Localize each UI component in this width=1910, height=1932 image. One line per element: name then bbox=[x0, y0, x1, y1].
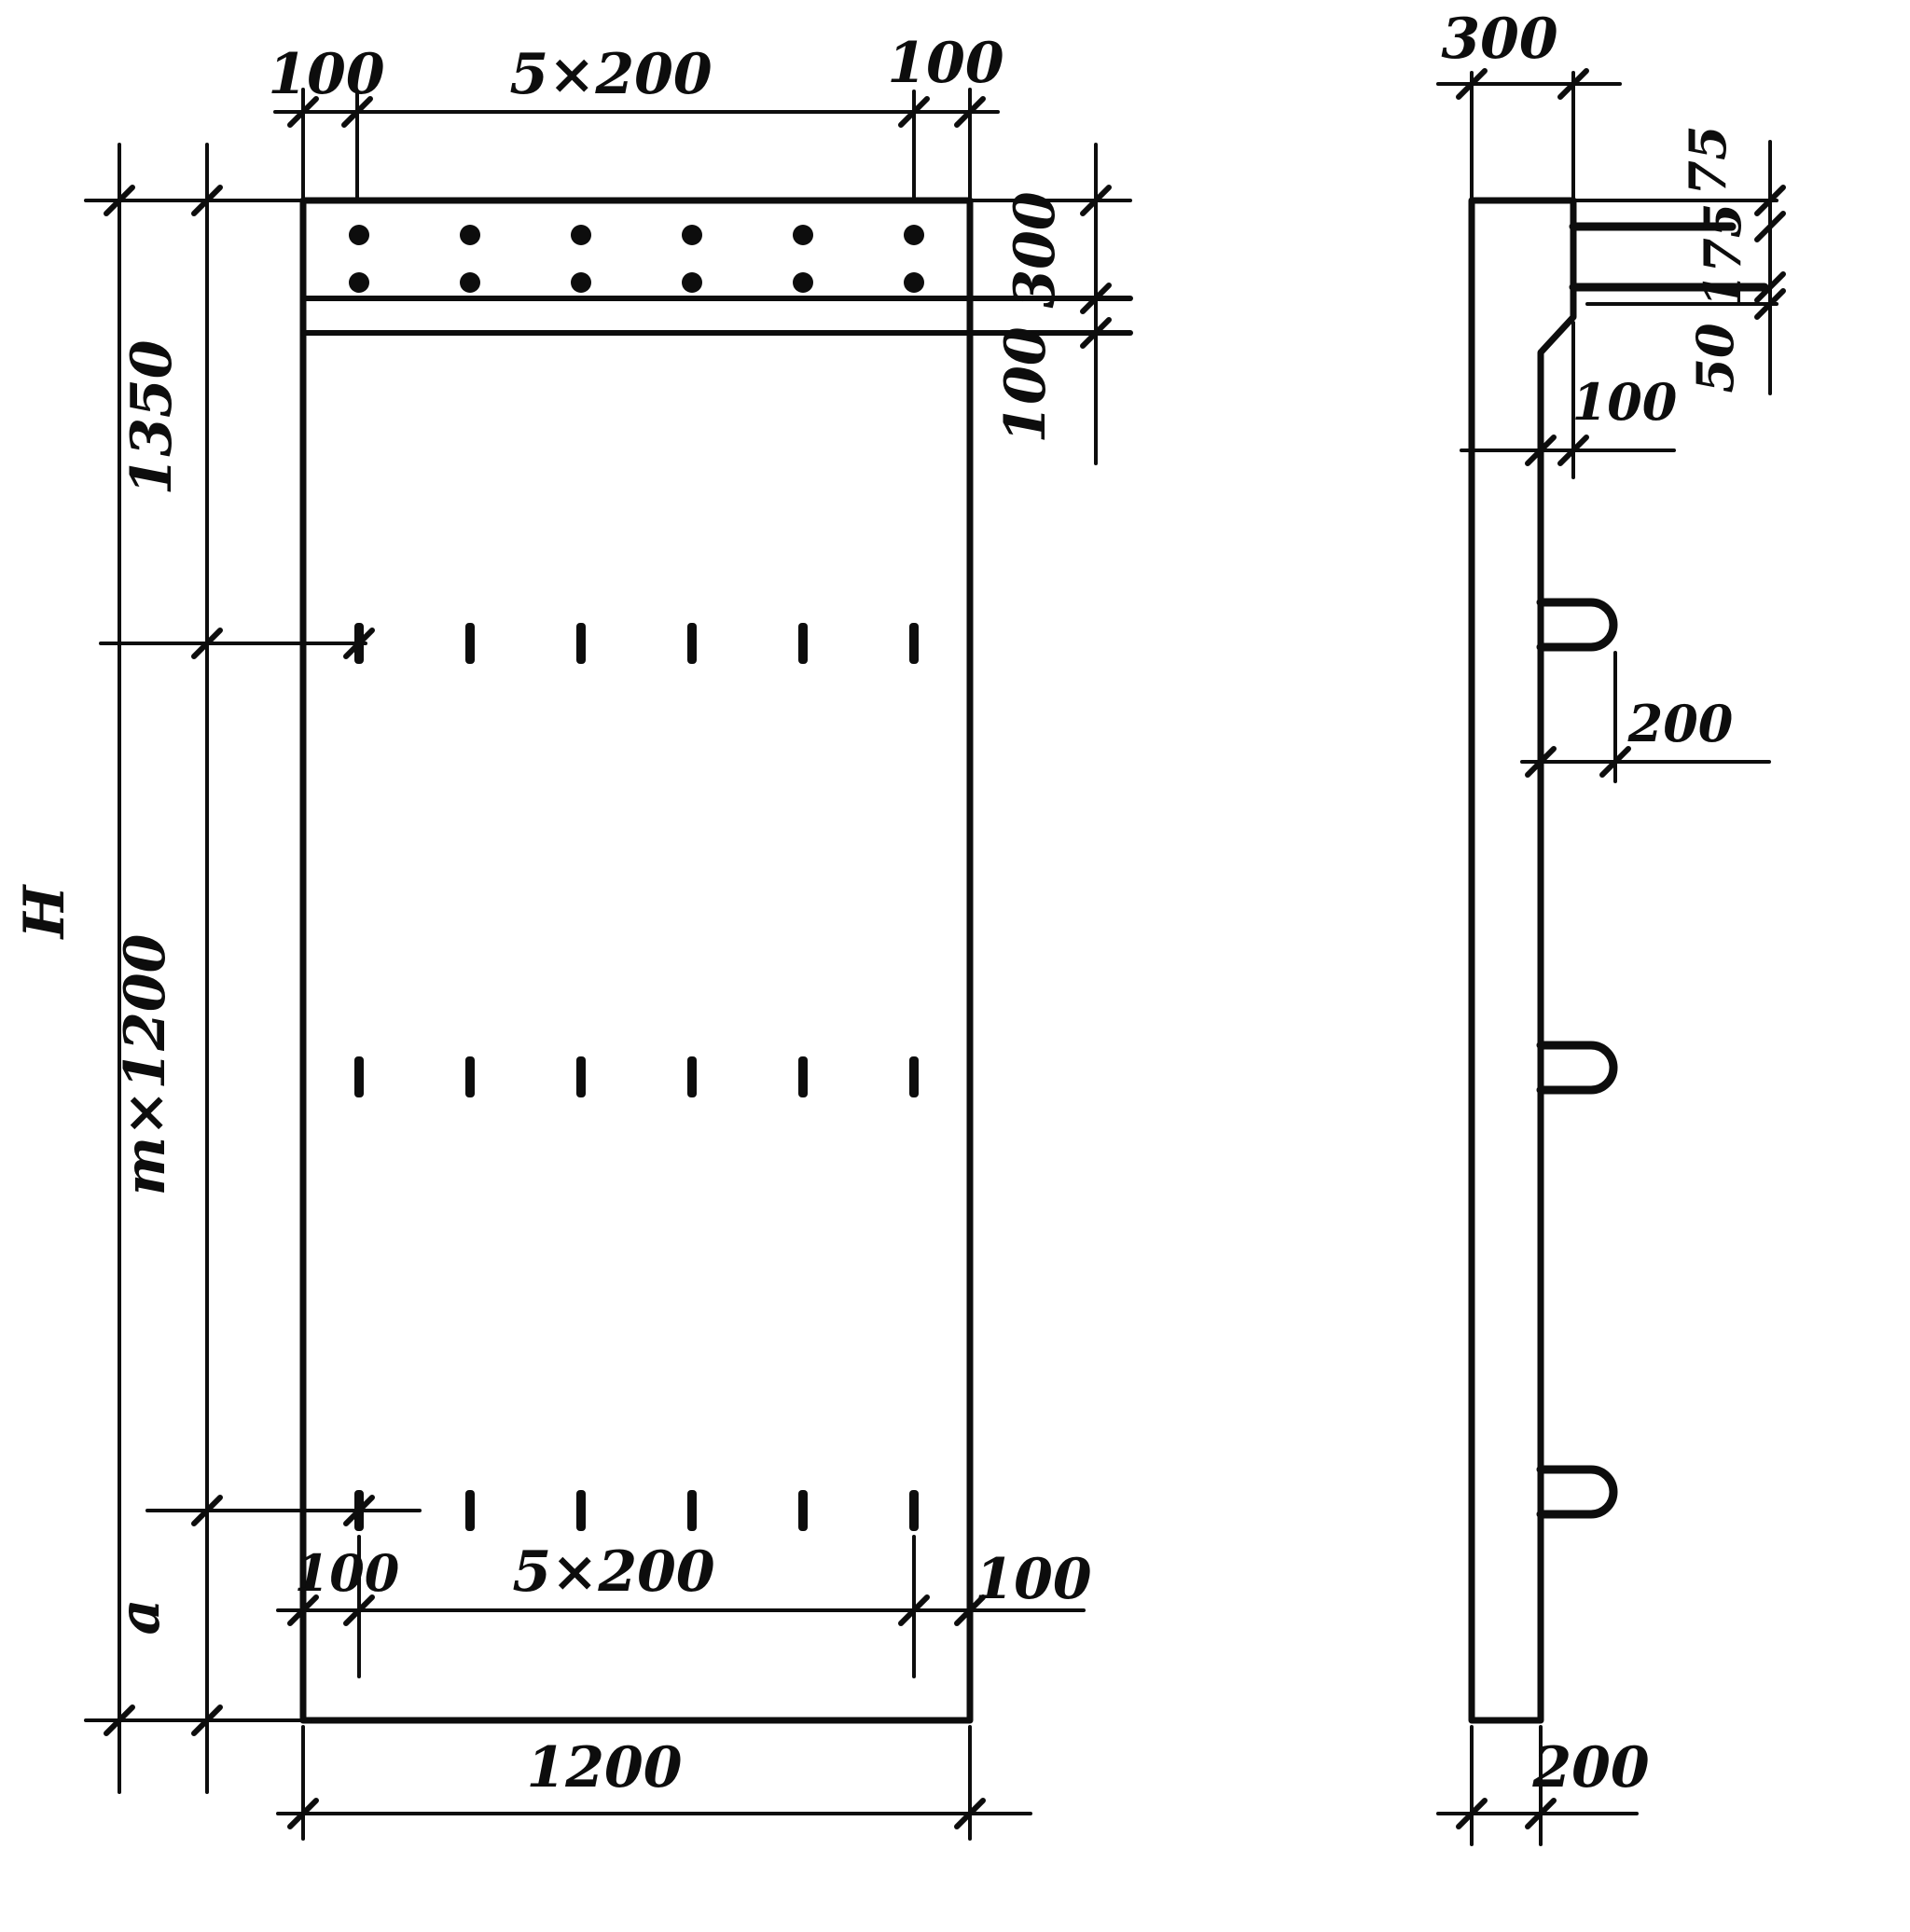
anchor-dot bbox=[904, 272, 924, 293]
dim-top-left-margin: 100 bbox=[268, 42, 384, 107]
anchor-dot bbox=[349, 225, 369, 245]
slot-marks bbox=[354, 623, 919, 1531]
dim-top-right-margin: 100 bbox=[887, 31, 1003, 96]
side-dimensions: 300 75 175 50 100 200 200 bbox=[1438, 7, 1777, 1844]
drawing-sheet: 100 5×200 100 300 100 1350 m×1200 a H 10… bbox=[0, 0, 1910, 1932]
lifting-loop bbox=[1541, 602, 1613, 647]
slot-mark bbox=[576, 623, 586, 664]
dim-bar-offset-bottom: 50 bbox=[1685, 323, 1745, 393]
dim-bottom-offset: a bbox=[107, 1599, 173, 1635]
anchor-dot bbox=[682, 272, 702, 293]
dim-bar-spacing: 175 bbox=[1693, 203, 1752, 309]
slot-mark bbox=[354, 1056, 364, 1097]
dim-step-width: 100 bbox=[1572, 372, 1678, 432]
slot-mark bbox=[909, 623, 919, 664]
slot-mark bbox=[465, 1490, 475, 1531]
dim-side-thickness: 300 bbox=[1441, 7, 1557, 72]
dim-top-spacing: 5×200 bbox=[509, 42, 713, 107]
lifting-loop bbox=[1541, 1470, 1613, 1514]
dim-total-height: H bbox=[12, 883, 77, 940]
dim-band-height: 300 bbox=[1003, 191, 1068, 308]
slot-mark bbox=[798, 1490, 808, 1531]
dim-panel-width: 1200 bbox=[527, 1735, 683, 1801]
slot-mark bbox=[798, 623, 808, 664]
front-panel-outline bbox=[303, 200, 970, 1720]
anchor-dot bbox=[904, 225, 924, 245]
front-dimensions: 100 5×200 100 300 100 1350 m×1200 a H 10… bbox=[12, 31, 1130, 1839]
lifting-loop bbox=[1541, 1045, 1613, 1090]
anchor-dot bbox=[571, 272, 591, 293]
slot-mark bbox=[576, 1490, 586, 1531]
side-panel-outline bbox=[1472, 200, 1573, 1720]
slot-mark bbox=[576, 1056, 586, 1097]
slot-mark bbox=[909, 1490, 919, 1531]
dim-bottom-left-margin: 100 bbox=[295, 1543, 400, 1603]
dim-top-offset: 1350 bbox=[119, 339, 185, 495]
anchor-dot bbox=[793, 272, 813, 293]
slot-mark bbox=[687, 623, 697, 664]
anchor-dots bbox=[349, 225, 924, 293]
slot-mark bbox=[687, 1490, 697, 1531]
dim-bottom-thickness: 200 bbox=[1531, 1735, 1649, 1801]
slot-mark bbox=[909, 1056, 919, 1097]
anchor-dot bbox=[460, 272, 480, 293]
panel-technical-drawing: 100 5×200 100 300 100 1350 m×1200 a H 10… bbox=[0, 0, 1910, 1932]
dim-bar-offset-top: 75 bbox=[1678, 125, 1737, 195]
anchor-dot bbox=[460, 225, 480, 245]
dim-bottom-spacing: 5×200 bbox=[512, 1539, 715, 1605]
anchor-dot bbox=[682, 225, 702, 245]
dim-bottom-right-margin: 100 bbox=[975, 1547, 1091, 1612]
anchor-dot bbox=[349, 272, 369, 293]
dim-band-gap: 100 bbox=[993, 326, 1059, 443]
slot-mark bbox=[465, 1056, 475, 1097]
anchor-dot bbox=[793, 225, 813, 245]
slot-mark bbox=[465, 623, 475, 664]
slot-mark bbox=[798, 1056, 808, 1097]
dim-loop-protrusion: 200 bbox=[1627, 694, 1734, 753]
dim-repeat-height: m×1200 bbox=[113, 933, 178, 1195]
anchor-dot bbox=[571, 225, 591, 245]
slot-mark bbox=[687, 1056, 697, 1097]
